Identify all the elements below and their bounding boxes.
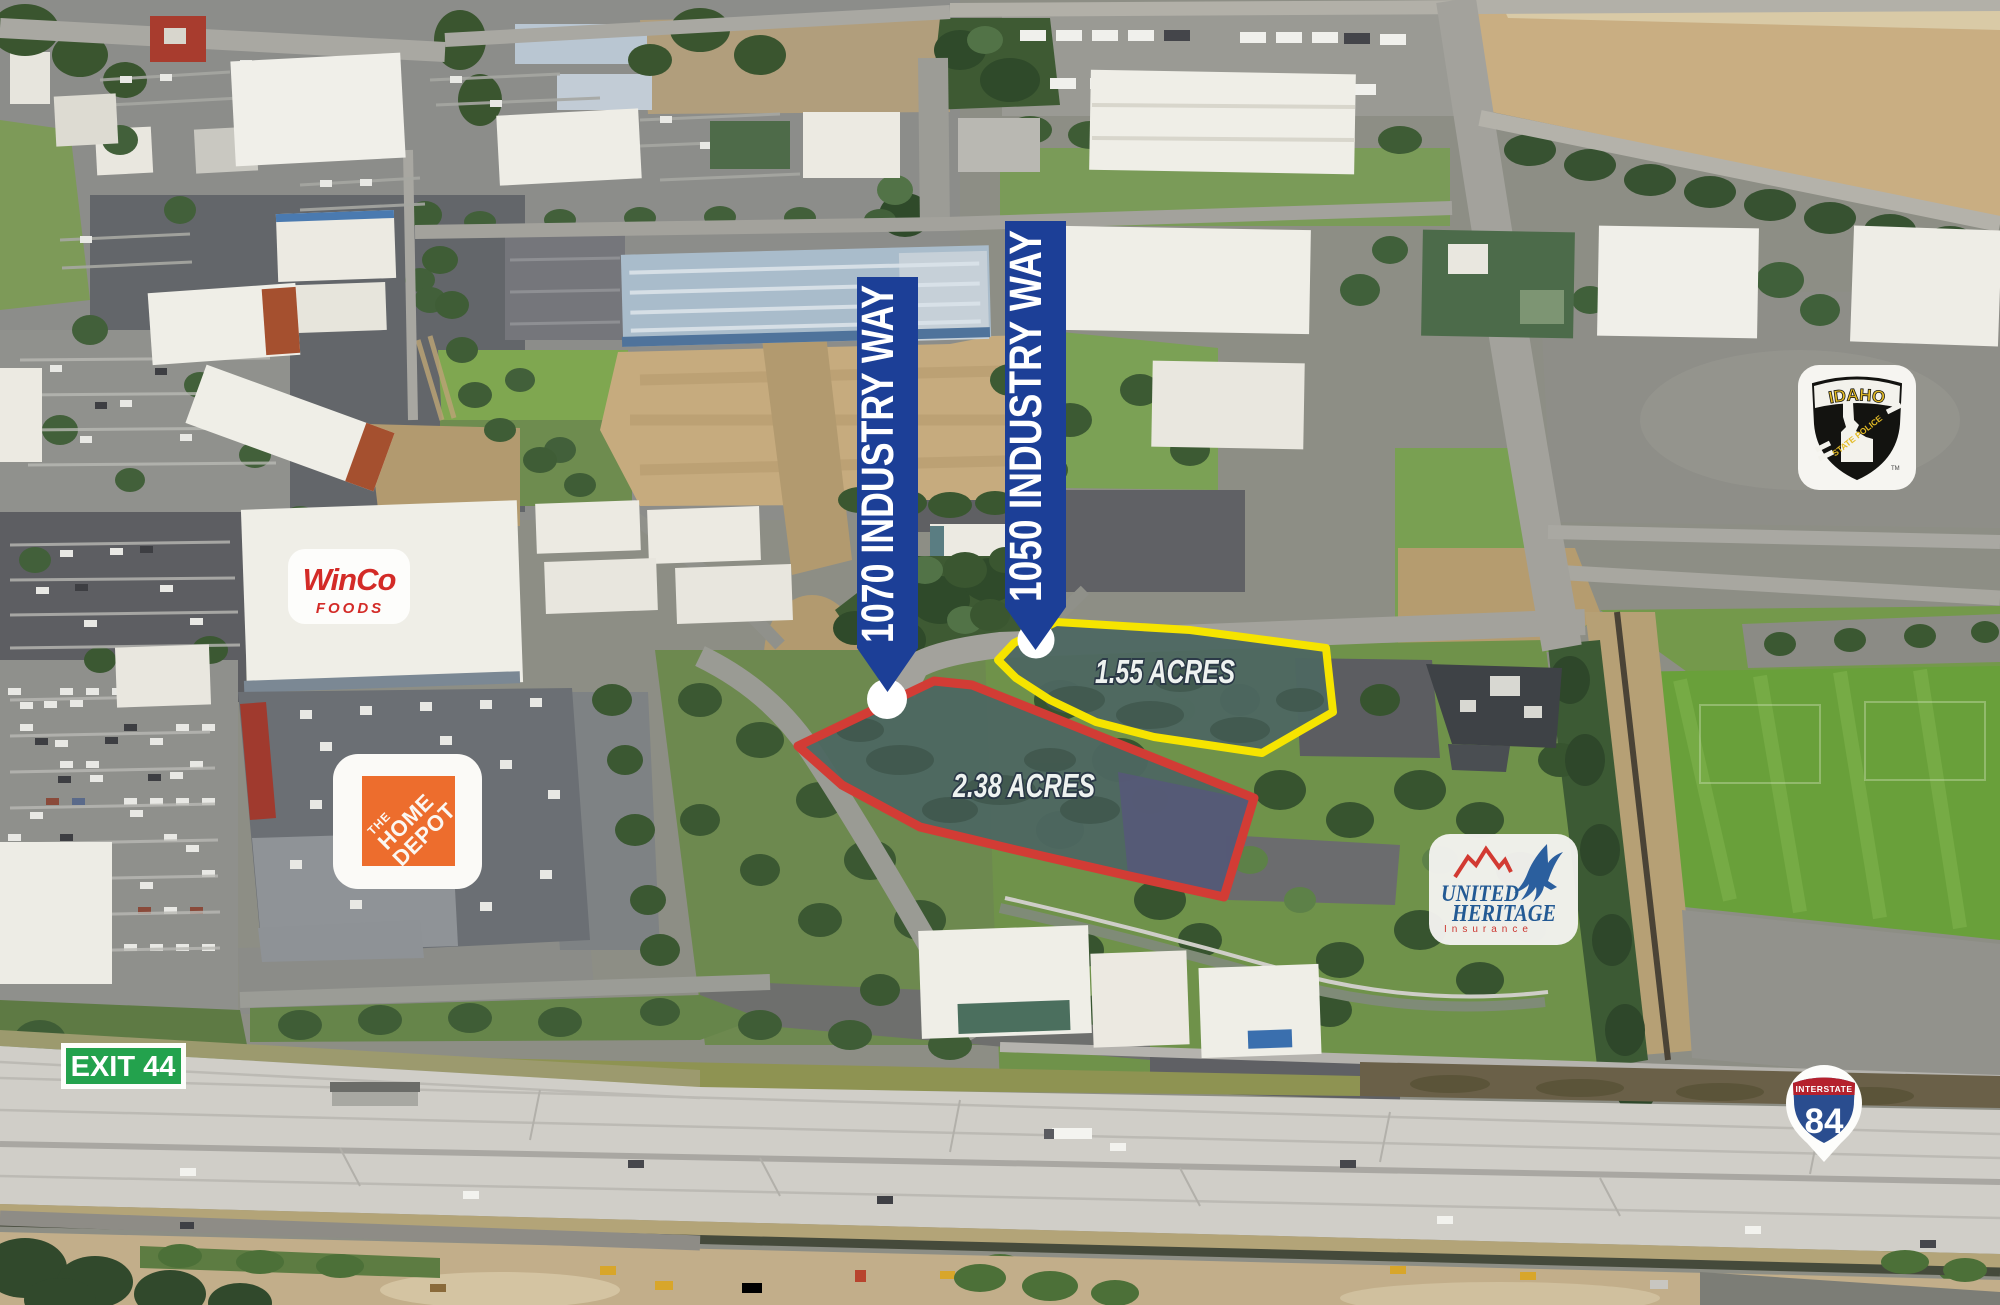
- svg-text:84: 84: [1805, 1102, 1844, 1141]
- svg-text:1050 INDUSTRY WAY: 1050 INDUSTRY WAY: [1000, 230, 1051, 602]
- svg-text:IDAHO: IDAHO: [1827, 385, 1887, 407]
- svg-text:EXIT 44: EXIT 44: [71, 1051, 176, 1083]
- svg-text:WinCo: WinCo: [303, 562, 396, 597]
- svg-text:TM: TM: [1891, 466, 1900, 472]
- svg-text:INTERSTATE: INTERSTATE: [1795, 1084, 1852, 1094]
- svg-text:Insurance: Insurance: [1444, 924, 1533, 935]
- svg-text:1070 INDUSTRY WAY: 1070 INDUSTRY WAY: [852, 285, 903, 643]
- svg-text:1.55 ACRES: 1.55 ACRES: [1095, 653, 1235, 690]
- svg-text:FOODS: FOODS: [316, 600, 384, 617]
- svg-text:2.38 ACRES: 2.38 ACRES: [952, 767, 1095, 804]
